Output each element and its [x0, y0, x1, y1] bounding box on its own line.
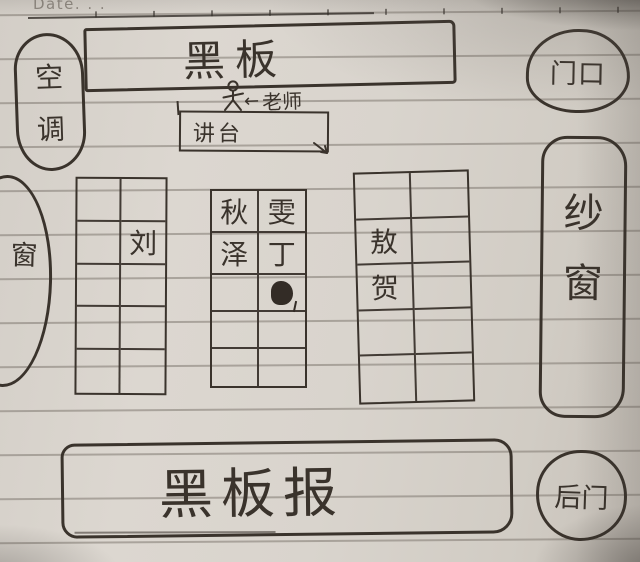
desk-cell: 刘 — [121, 222, 165, 265]
desk-cell — [359, 310, 416, 357]
desk-cell — [212, 312, 259, 349]
bulletin-board-box: 黑板报 — [60, 438, 513, 539]
desk-cell — [121, 179, 165, 222]
blackboard-label: 黑板 — [182, 25, 287, 88]
bulletin-board-label: 黑板报 — [159, 448, 346, 529]
podium-label: 讲台 — [193, 115, 243, 147]
desk-cell — [259, 349, 306, 386]
desk-cell — [259, 275, 306, 312]
desk-cell — [212, 349, 259, 386]
back-door-label: 后门 — [554, 475, 609, 516]
desk-cell — [77, 222, 121, 265]
teacher-arrow: ← — [244, 90, 260, 112]
desk-cell — [413, 263, 470, 310]
right-window-box: 纱 窗 — [539, 136, 628, 419]
desk-cell — [411, 171, 468, 218]
desk-cell — [77, 307, 121, 350]
desk-cell — [355, 173, 412, 220]
desk-cell — [360, 355, 417, 402]
podium-box: 讲台 — [179, 110, 329, 152]
desk-cell: 贺 — [357, 264, 414, 311]
desk-cell: 丁 — [259, 233, 306, 275]
desk-cell — [415, 308, 472, 355]
desk-cell — [121, 307, 165, 350]
air-conditioner-char-1: 空 — [34, 56, 63, 97]
desk-cell: 敖 — [356, 219, 413, 266]
desk-cell — [416, 354, 473, 401]
desk-cell: 秋 — [212, 191, 259, 233]
desk-cell — [212, 275, 259, 312]
podium-corner-arrow — [312, 141, 334, 163]
blackboard-box: 黑板 — [83, 20, 456, 92]
desk-cell — [259, 312, 306, 349]
desk-cell: 泽 — [212, 233, 259, 275]
desk-cell — [412, 217, 469, 264]
notebook-sketch-photo: Date. . . 黑板 ← 老师 讲台 空 调 门口 窗 — [0, 0, 640, 562]
desk-cell — [77, 264, 121, 307]
desk-cell — [120, 350, 164, 393]
desk-group-right: 敖贺 — [353, 169, 475, 404]
desk-cell — [121, 265, 165, 308]
desk-group-middle: 秋雯泽丁 — [210, 189, 307, 388]
right-window-char-2: 窗 — [563, 251, 604, 309]
desk-cell: 雯 — [259, 191, 306, 233]
left-window-label: 窗 — [10, 233, 38, 273]
desk-cell — [76, 350, 120, 393]
air-conditioner-char-2: 调 — [36, 108, 65, 149]
air-conditioner-blob: 空 调 — [13, 32, 88, 172]
desk-group-left: 刘 — [74, 177, 167, 395]
right-window-char-1: 纱 — [563, 181, 604, 239]
scribbled-out-name — [271, 281, 293, 305]
desk-cell — [77, 179, 121, 222]
front-door-label: 门口 — [550, 51, 607, 91]
